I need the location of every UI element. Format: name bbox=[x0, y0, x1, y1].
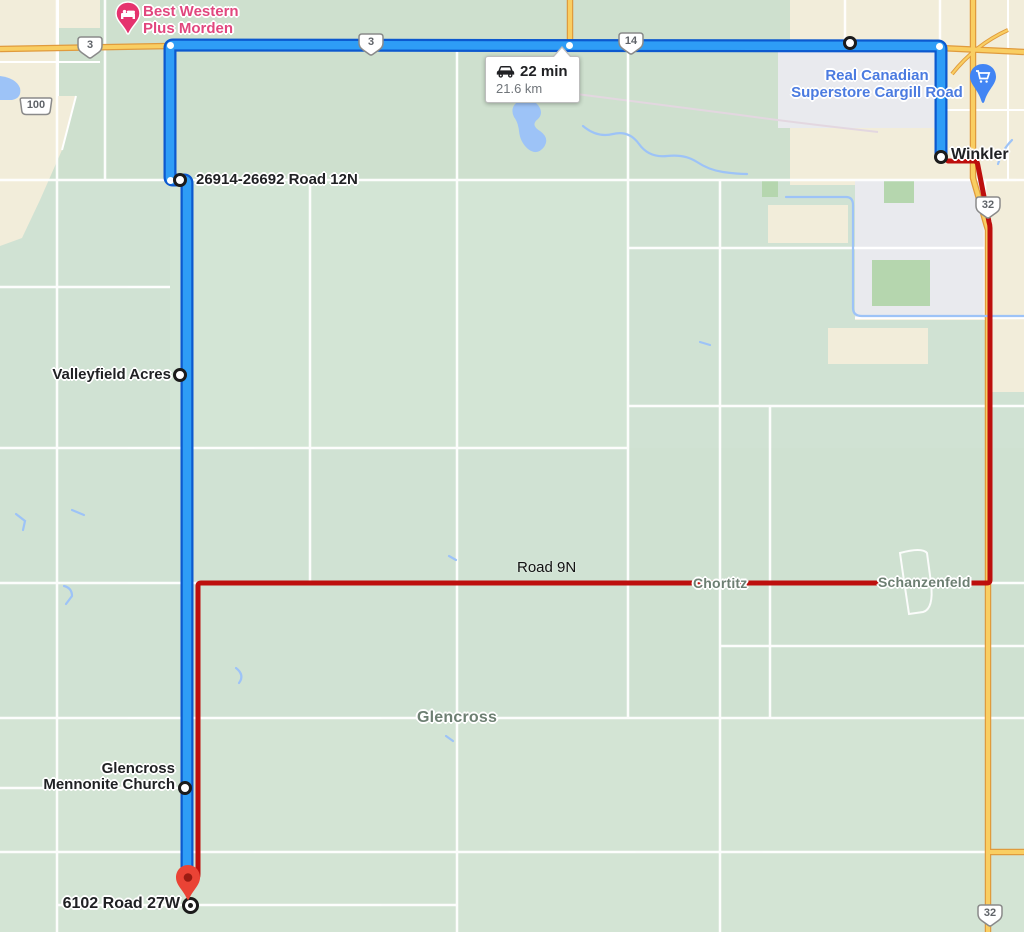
road-label-9n: Road 9N bbox=[517, 559, 576, 576]
highway-shield-3-mid: 3 bbox=[358, 33, 384, 57]
waypoint-label-winkler[interactable]: Winkler bbox=[951, 147, 1009, 163]
superstore-label-line2: Superstore Cargill Road bbox=[757, 84, 997, 101]
hotel-label-line1: Best Western bbox=[143, 3, 239, 20]
waypoint-dot-road12n[interactable] bbox=[173, 173, 187, 187]
route-vertex-dot bbox=[936, 43, 943, 50]
hotel-pin[interactable] bbox=[114, 1, 142, 37]
hotel-label[interactable]: Best Western Plus Morden bbox=[143, 3, 239, 37]
car-icon bbox=[496, 64, 515, 79]
superstore-label[interactable]: Real Canadian Superstore Cargill Road bbox=[757, 67, 997, 101]
waypoint-label-road12n: 26914-26692 Road 12N bbox=[196, 172, 358, 188]
place-label-chortitz[interactable]: Chortitz bbox=[693, 575, 747, 591]
route-info-tooltip[interactable]: 22 min 21.6 km bbox=[485, 56, 580, 103]
highway-shield-100: 100 bbox=[19, 97, 53, 117]
route-vertex-dot bbox=[167, 42, 174, 49]
tooltip-distance: 21.6 km bbox=[496, 81, 579, 96]
hotel-label-line2: Plus Morden bbox=[143, 20, 239, 37]
place-label-schanzenfeld[interactable]: Schanzenfeld bbox=[878, 574, 971, 590]
highway-shield-14: 14 bbox=[618, 32, 644, 56]
highway-shield-32-top: 32 bbox=[975, 196, 1001, 220]
waypoint-label-glencross-church: Glencross Mennonite Church bbox=[20, 761, 175, 793]
highway-shield-3-west: 3 bbox=[77, 36, 103, 60]
superstore-label-line1: Real Canadian bbox=[757, 67, 997, 84]
waypoint-dot-valleyfield[interactable] bbox=[173, 368, 187, 382]
waypoint-label-valleyfield: Valleyfield Acres bbox=[0, 367, 171, 383]
highway-shield-32-bottom: 32 bbox=[977, 904, 1003, 928]
place-label-glencross[interactable]: Glencross bbox=[417, 709, 497, 727]
waypoint-dot-glencross-church[interactable] bbox=[178, 781, 192, 795]
waypoint-dot-winkler[interactable] bbox=[934, 150, 948, 164]
tooltip-duration: 22 min bbox=[520, 63, 568, 80]
waypoint-label-destination: 6102 Road 27W bbox=[20, 896, 180, 912]
map-canvas[interactable]: 3 3 100 14 32 32 Best Western Plus Morde… bbox=[0, 0, 1024, 932]
waypoint-dot-highway14[interactable] bbox=[843, 36, 857, 50]
